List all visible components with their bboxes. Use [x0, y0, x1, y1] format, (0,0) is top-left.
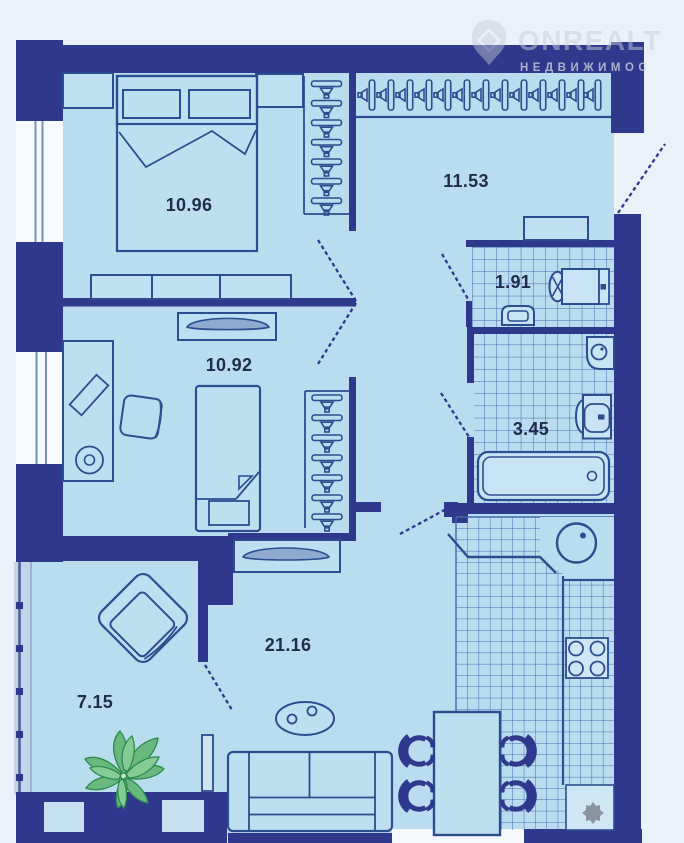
- svg-text:7.15: 7.15: [77, 692, 113, 712]
- svg-text:НЕДВИЖИМОС: НЕДВИЖИМОС: [520, 62, 651, 74]
- svg-text:ONREALT: ONREALT: [518, 25, 662, 56]
- svg-text:1.91: 1.91: [495, 272, 531, 292]
- svg-text:10.92: 10.92: [206, 355, 253, 375]
- svg-text:21.16: 21.16: [265, 635, 312, 655]
- svg-text:11.53: 11.53: [443, 171, 489, 191]
- svg-text:10.96: 10.96: [166, 195, 213, 215]
- svg-text:3.45: 3.45: [513, 419, 549, 439]
